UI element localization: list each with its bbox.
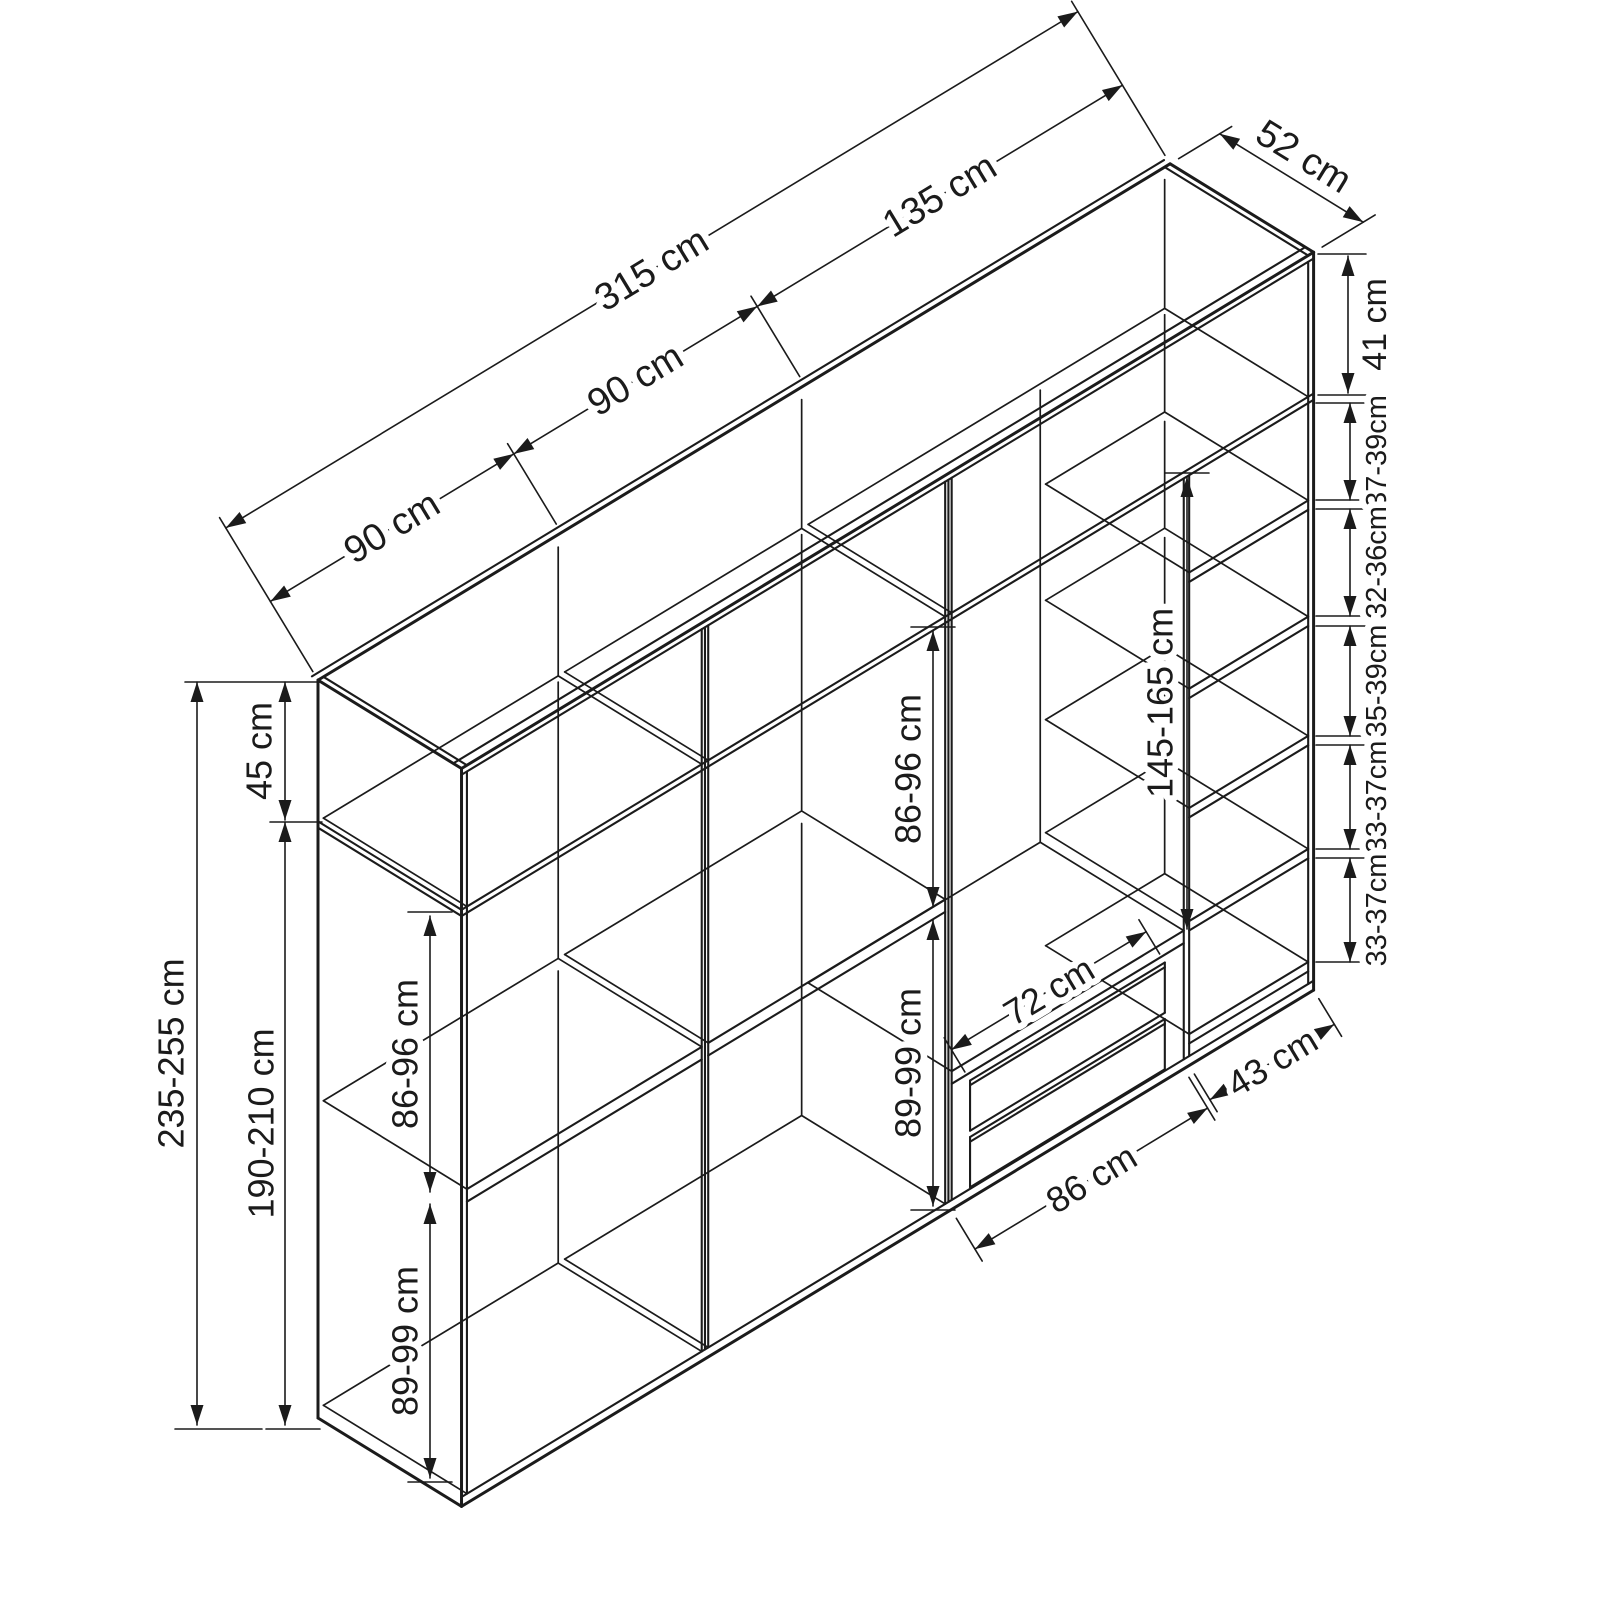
- dimension-label: 89-99 cm: [385, 1266, 426, 1416]
- dimension-label: 86-96 cm: [385, 979, 426, 1129]
- dimension-label: 33-37cm: [1361, 741, 1393, 854]
- diagram-canvas: 90 cm90 cm135 cm315 cm52 cm72 cm86 cm43 …: [0, 0, 1600, 1600]
- dimension-label: 37-39cm: [1361, 395, 1393, 508]
- dimension-label: 86-96 cm: [888, 694, 929, 844]
- dimension-label: 41 cm: [1356, 278, 1394, 371]
- dimension-label: 190-210 cm: [241, 1028, 282, 1218]
- dimension-label: 35-39cm: [1361, 625, 1393, 738]
- dimension-label: 45 cm: [239, 702, 280, 800]
- dimension-label: 235-255 cm: [151, 958, 192, 1148]
- dimension-label: 33-37cm: [1361, 854, 1393, 967]
- dimension-label: 145-165 cm: [1140, 608, 1181, 798]
- dimension-label: 89-99 cm: [888, 988, 929, 1138]
- wardrobe-dimension-diagram: 90 cm90 cm135 cm315 cm52 cm72 cm86 cm43 …: [0, 0, 1600, 1600]
- dimension-label: 32-36cm: [1361, 506, 1393, 619]
